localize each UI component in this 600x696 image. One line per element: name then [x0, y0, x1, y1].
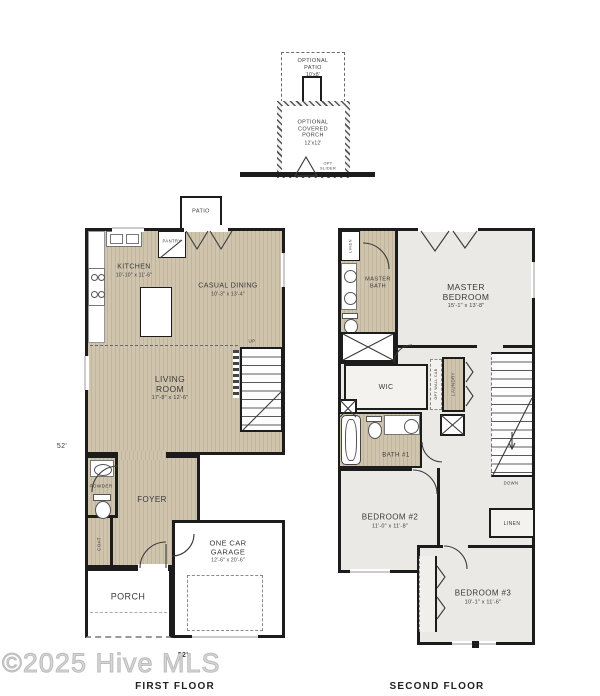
first-floor-title: FIRST FLOOR: [135, 681, 215, 693]
kitchen-sink: [106, 231, 142, 247]
pantry-closet: [158, 231, 186, 258]
powder-toilet: [93, 494, 111, 501]
living-room-label: LIVING ROOM 17'-8" x 12'-6": [146, 374, 194, 402]
bedroom2-window: [350, 569, 390, 576]
optional-porch-label: OPTIONAL COVERED PORCH 12'x12': [291, 120, 335, 147]
dimension-52: 52': [57, 443, 67, 451]
range-fixture: [88, 268, 105, 306]
garage-door-opening: [192, 634, 258, 641]
opt-slider-label: OPT SLIDER: [320, 161, 336, 170]
powder-toilet-bowl: [95, 501, 111, 519]
powder-wall: [115, 455, 118, 518]
porch-baseline: [240, 172, 375, 177]
bath1-tub: [341, 415, 361, 465]
bedroom2-label: BEDROOM #2 11'-0" x 11'-8": [362, 512, 418, 529]
foyer-label: FOYER: [137, 495, 167, 505]
foyer-opening: [118, 451, 166, 460]
front-door-opening: [138, 564, 168, 571]
master-vanity: [341, 263, 357, 310]
master-bedroom-wall-a: [395, 345, 477, 348]
sf-back-door-opening: [418, 225, 478, 232]
porch-room: [85, 568, 172, 638]
kitchen-label: KITCHEN 10'-10" x 11'-6": [116, 263, 152, 278]
patio-stoop: [302, 76, 322, 103]
bath1-vanity: [384, 415, 420, 435]
stairs-up-label: UP: [248, 338, 255, 343]
powder-sink: [90, 460, 114, 477]
second-floor-title: SECOND FLOOR: [390, 681, 485, 693]
watermark: ©2025 Hive MLS: [2, 648, 221, 679]
garage-label: ONE CAR GARAGE 12'-6" x 20'-6": [200, 539, 256, 564]
bath1-label: BATH #1: [382, 451, 409, 458]
casual-dining-label: CASUAL DINING 10'-3" x 13'-4": [198, 282, 257, 297]
bedroom2-right-wall: [437, 468, 440, 545]
master-bedroom-label: MASTER BEDROOM 15'-1" x 13'-8": [434, 282, 498, 310]
bedroom3-label: BEDROOM #3 10'-1" x 11'-6": [455, 588, 511, 605]
kitchen-window: [112, 225, 144, 232]
porch-step-line: [90, 612, 167, 613]
back-door-opening: [184, 225, 228, 232]
garage-parking-outline: [187, 575, 263, 631]
powder-label: POWDER: [89, 483, 112, 489]
coat-wall: [110, 518, 113, 568]
floor-plan: OPTIONAL PATIO 10'x8' OPTIONAL COVERED P…: [0, 0, 600, 696]
opt-wall-cab-label: OPT WALL CAB: [434, 368, 438, 399]
hall-chase-box: [440, 414, 465, 436]
master-bedroom-wall-b: [503, 345, 535, 348]
bedroom3-closet: [419, 556, 437, 632]
pantry-label: PANTRY: [163, 238, 182, 243]
wic-label: WIC: [379, 384, 394, 392]
porch-label: PORCH: [111, 592, 146, 603]
linen-hall-label: LINEN: [504, 521, 521, 527]
stairs-down: [491, 352, 534, 477]
stairs-down-label: DOWN: [504, 480, 519, 485]
living-window: [82, 356, 89, 390]
stair-hatch: [233, 350, 239, 398]
laundry-label: LAUNDRY: [451, 372, 456, 396]
kitchen-dining-divider: [90, 345, 238, 346]
coat-label: COAT: [97, 537, 102, 551]
linen-upper-label: LINEN: [348, 239, 353, 253]
patio-label: PATIO: [192, 209, 210, 216]
dining-window: [281, 253, 288, 287]
bedroom3-window-mullion: [472, 641, 479, 648]
kitchen-island: [140, 287, 172, 337]
master-bath-label: MASTER BATH: [361, 276, 395, 289]
master-shower: [341, 332, 395, 362]
stairs-up: [240, 347, 283, 432]
bedroom3-door-opening: [443, 543, 468, 549]
bath1-toilet-bowl: [368, 422, 382, 439]
master-bedroom-window: [531, 262, 538, 298]
bedroom2-top-wall: [338, 468, 412, 471]
